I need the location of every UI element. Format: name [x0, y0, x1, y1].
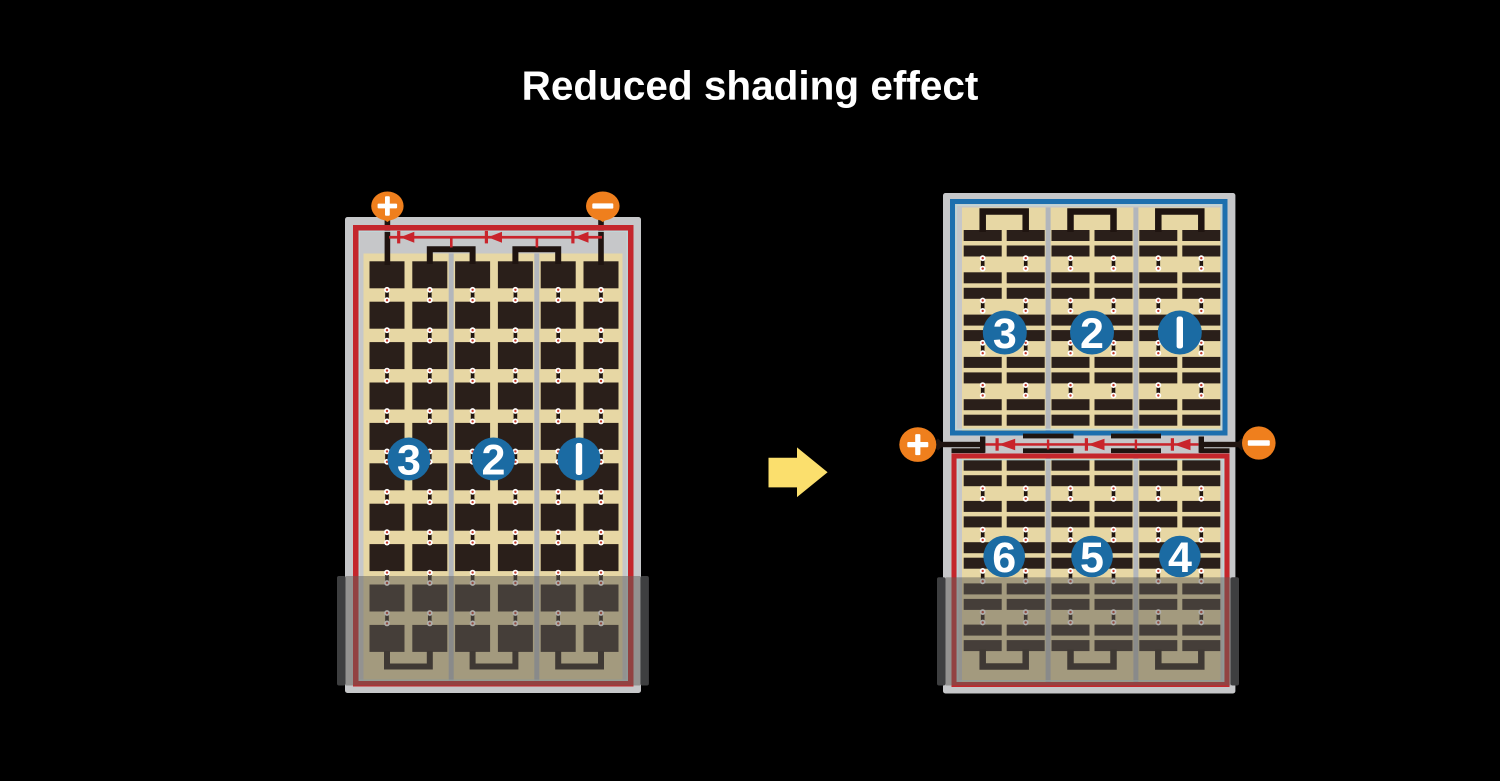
svg-text:5: 5	[1080, 534, 1104, 582]
svg-text:2: 2	[1080, 310, 1104, 358]
svg-text:Reduced shading effect: Reduced shading effect	[522, 63, 979, 109]
svg-text:3: 3	[397, 437, 421, 485]
svg-text:6: 6	[992, 534, 1016, 582]
svg-text:2: 2	[481, 437, 505, 485]
svg-text:4: 4	[1168, 534, 1192, 582]
svg-text:3: 3	[993, 310, 1017, 358]
